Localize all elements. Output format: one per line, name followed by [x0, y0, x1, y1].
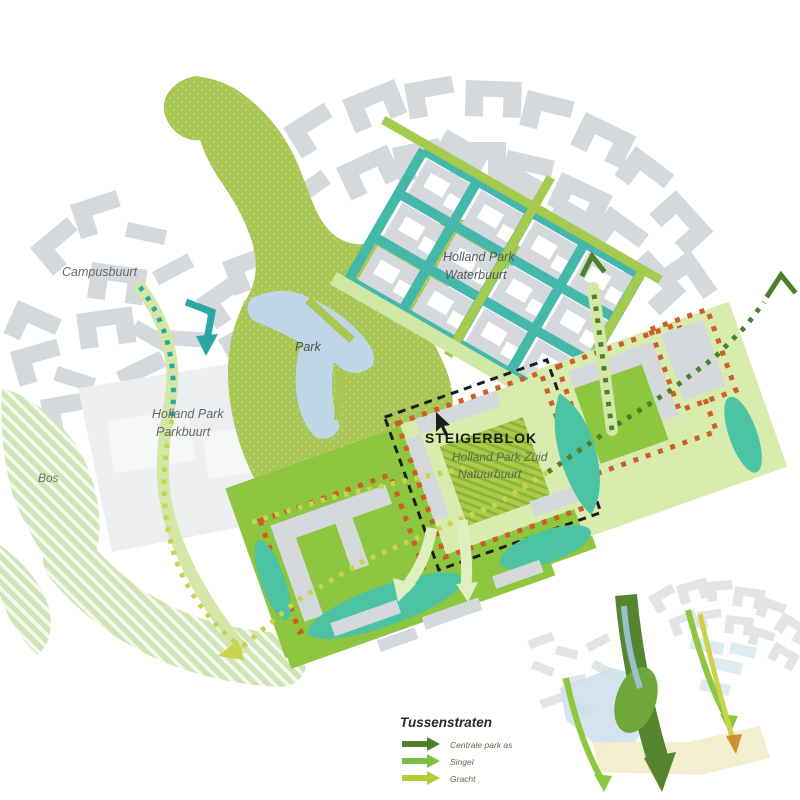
legend-label-gracht: Gracht: [450, 774, 476, 784]
label-steigerblok: STEIGERBLOK: [425, 430, 537, 446]
pale-arrow-2: [462, 520, 467, 585]
legend: Tussenstraten Centrale park as Singel Gr…: [400, 715, 513, 785]
label-waterbuurt-1: Holland Park: [443, 250, 515, 264]
route-arrow-ne: [768, 275, 794, 295]
legend-arrow-centrale: [402, 737, 440, 751]
label-park: Park: [295, 340, 321, 354]
legend-arrow-singel: [402, 754, 440, 768]
legend-title: Tussenstraten: [400, 715, 492, 730]
map-canvas: Campusbuurt Holland Park Waterbuurt Park…: [0, 0, 800, 800]
legend-label-singel: Singel: [450, 757, 475, 767]
inset-overview-map: [527, 578, 800, 792]
masterplan-map: Campusbuurt Holland Park Waterbuurt Park…: [0, 0, 800, 800]
label-parkbuurt-1: Holland Park: [152, 407, 224, 421]
label-zuid-1: Holland Park Zuid: [452, 450, 548, 464]
label-waterbuurt-2: Waterbuurt: [445, 268, 507, 282]
legend-label-centrale: Centrale park as: [450, 740, 513, 750]
label-campusbuurt: Campusbuurt: [62, 265, 138, 279]
label-parkbuurt-2: Parkbuurt: [156, 425, 211, 439]
label-bos: Bos: [38, 471, 59, 485]
label-zuid-2: Natuurbuurt: [458, 467, 522, 481]
legend-arrow-gracht: [402, 771, 440, 785]
